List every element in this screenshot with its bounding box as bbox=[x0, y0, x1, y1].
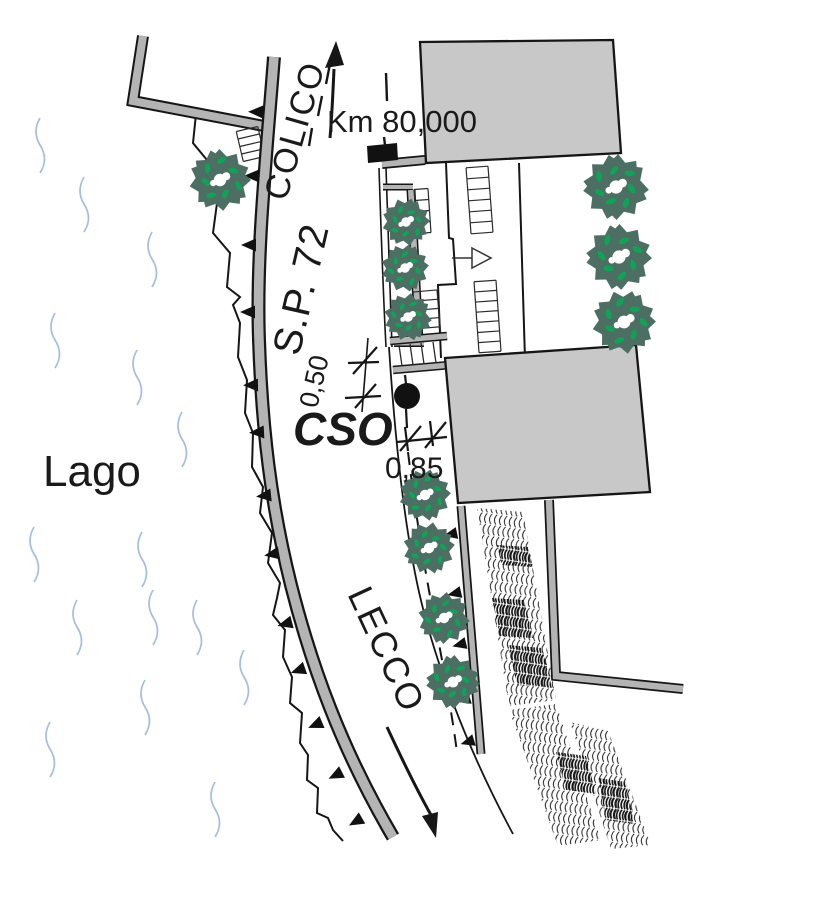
water-wave-icon bbox=[149, 590, 158, 645]
site-plan-map: Lago Km 80,000 COLICO S.P. 72 LECCO CSO … bbox=[0, 0, 827, 904]
lawn-divider-line bbox=[519, 163, 525, 359]
culvert-rib bbox=[410, 344, 413, 365]
dim-lower-label: 0,85 bbox=[385, 452, 443, 485]
water-wave-icon bbox=[30, 527, 39, 582]
lake-label: Lago bbox=[43, 447, 141, 496]
dimension-tick bbox=[400, 426, 421, 451]
embankment-tick-icon bbox=[291, 662, 307, 674]
stair-stripes bbox=[466, 166, 493, 234]
lecco-direction-arrow-shaft bbox=[387, 727, 431, 815]
embankment-tick-icon bbox=[243, 379, 258, 392]
dimension-tick bbox=[425, 422, 446, 448]
culvert-rib bbox=[399, 345, 402, 366]
tree-icon bbox=[591, 289, 657, 355]
km-stone-marker bbox=[367, 143, 398, 163]
dim-upper-line bbox=[362, 338, 368, 412]
cso-outfall-point bbox=[394, 383, 420, 409]
dimension-tick bbox=[405, 427, 408, 451]
dimension-tick bbox=[406, 409, 407, 428]
tree-icon bbox=[582, 153, 651, 222]
tree-icon bbox=[585, 223, 654, 292]
tree-icon bbox=[417, 591, 471, 645]
embankment-tick-icon bbox=[256, 489, 272, 502]
tree-icon bbox=[402, 521, 456, 575]
dim-upper-label: 0,50 bbox=[294, 352, 335, 410]
water-wave-icon bbox=[193, 600, 202, 655]
tree-icon bbox=[380, 243, 430, 293]
embankment-tick-icon bbox=[308, 716, 324, 728]
building-north bbox=[420, 40, 621, 163]
water-wave-icon bbox=[138, 532, 147, 587]
water-wave-icon bbox=[51, 313, 60, 368]
kerb-line bbox=[379, 168, 386, 347]
water-wave-icon bbox=[46, 722, 55, 777]
colico-direction-arrow-head bbox=[325, 41, 344, 68]
map-canvas: Lago Km 80,000 COLICO S.P. 72 LECCO CSO … bbox=[0, 0, 827, 904]
embankment-tick-icon bbox=[264, 547, 280, 560]
culvert-rib bbox=[433, 342, 436, 363]
water-wave-icon bbox=[36, 118, 45, 173]
road-name-label: S.P. 72 bbox=[265, 219, 338, 359]
lecco-direction-arrow-head bbox=[422, 812, 438, 838]
km-label: Km 80,000 bbox=[327, 104, 477, 139]
direction-south-label: LECCO bbox=[340, 580, 434, 719]
water-wave-icon bbox=[211, 782, 220, 837]
water-wave-icon bbox=[148, 232, 157, 287]
water-wave-icon bbox=[240, 650, 249, 705]
embankment-tick-icon bbox=[278, 616, 294, 629]
water-wave-icon bbox=[141, 680, 150, 735]
retaining-walls bbox=[443, 500, 683, 754]
embankment-tick-icon bbox=[329, 766, 345, 779]
lot-arrow-head-icon bbox=[472, 248, 491, 268]
embankment-tick-icon bbox=[461, 734, 476, 745]
l-shaped-wall bbox=[549, 500, 683, 689]
scrub-hatch-dense-patch bbox=[497, 545, 533, 567]
embankment-tick-icon bbox=[349, 812, 365, 825]
water-wave-icon bbox=[80, 177, 89, 232]
stair-stripes bbox=[474, 280, 501, 353]
outfall-label: CSO bbox=[293, 403, 393, 455]
embankment-tick-icon bbox=[240, 306, 255, 319]
embankment-tick-icon bbox=[241, 239, 256, 252]
building-south bbox=[445, 345, 650, 503]
embankment-tick-icon bbox=[248, 106, 263, 119]
water-wave-icon bbox=[73, 600, 82, 655]
dimension-tick bbox=[397, 437, 447, 442]
water-wave-icon bbox=[133, 350, 142, 405]
dimension-tick bbox=[405, 375, 406, 384]
water-wave-icon bbox=[178, 412, 187, 467]
